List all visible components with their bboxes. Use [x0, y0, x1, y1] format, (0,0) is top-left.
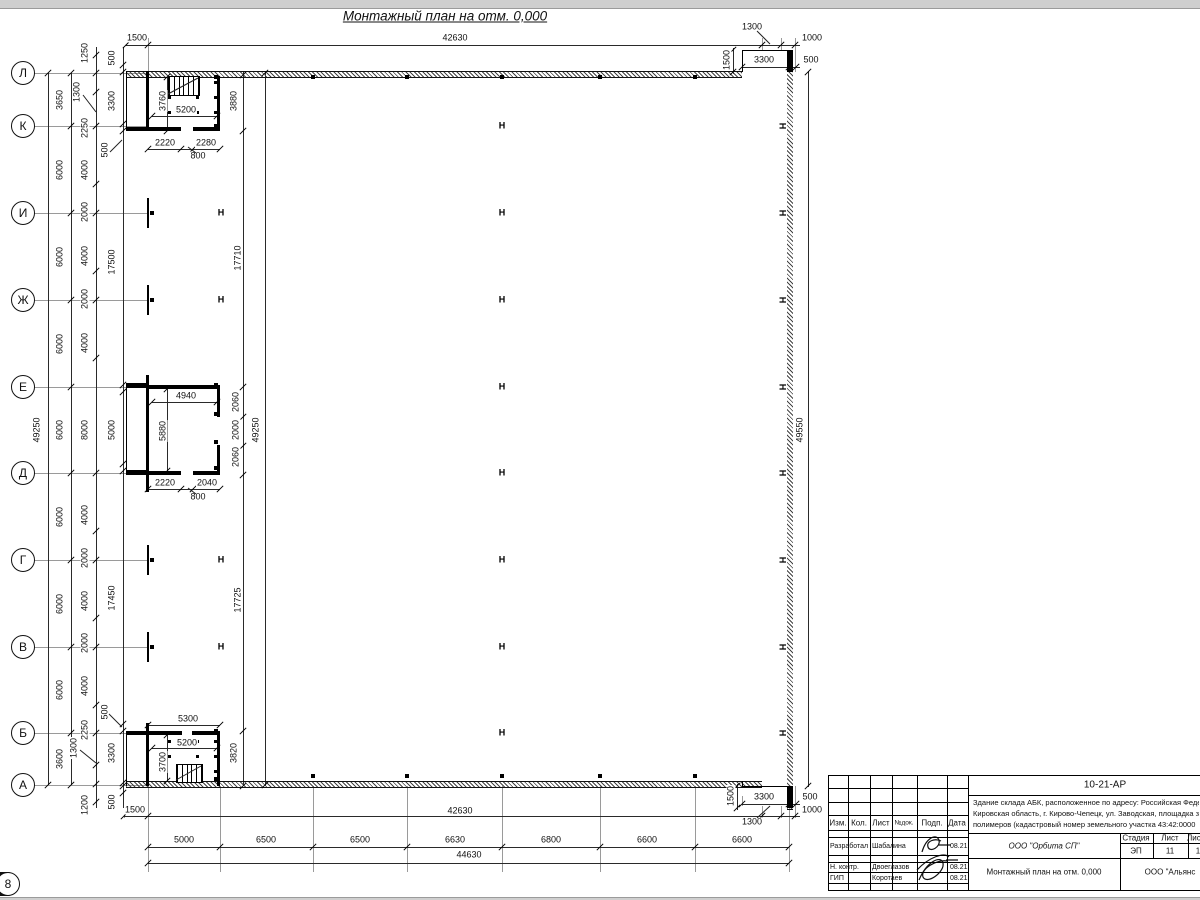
steel-column-symbol: Н [499, 383, 506, 392]
column-dot [214, 96, 217, 99]
wall-edge-line [742, 781, 743, 786]
sheet-value: 11 [1166, 847, 1174, 856]
steel-column-symbol: Н [499, 122, 506, 131]
dim-label: 42630 [446, 807, 473, 816]
dim-tick [216, 721, 223, 728]
address-line-2: Кировская область, г. Кирово-Чепецк, ул.… [973, 809, 1199, 818]
wall-hatched [126, 781, 762, 788]
dim-label: 1300 [73, 81, 82, 103]
steel-column-symbol: Н [218, 556, 225, 565]
dim-label: 17500 [108, 248, 117, 275]
steel-column-symbol: Н [778, 297, 787, 304]
column-square [405, 75, 409, 79]
steel-column-symbol: Н [499, 556, 506, 565]
dim-label: 2250 [81, 719, 90, 741]
dim-label: 6600 [636, 836, 658, 845]
dim-label: 500 [802, 56, 819, 65]
dim-label: 2220 [154, 139, 176, 148]
stage-value: ЭП [1130, 847, 1142, 856]
pilaster-square [150, 298, 154, 302]
dimension-line [152, 116, 217, 117]
sheets-value: 1 [1196, 847, 1200, 856]
dimension-line [48, 73, 49, 785]
doc-code: 10-21-АР [1084, 781, 1126, 790]
column-square [598, 774, 602, 778]
dim-label: 3650 [56, 89, 65, 111]
dim-label: 42630 [441, 34, 468, 43]
column-dot [168, 755, 171, 758]
steel-column-symbol: Н [778, 644, 787, 651]
stamp-col-izm: Изм. [829, 819, 846, 828]
dim-label: 6000 [56, 419, 65, 441]
dimension-line [124, 816, 800, 817]
date-developer: 08.21 [950, 842, 968, 851]
dim-tick [804, 782, 811, 789]
dim-label: 49250 [33, 416, 42, 443]
column-square [311, 75, 315, 79]
axis-bubble-left: Е [11, 375, 35, 399]
wall-solid [193, 471, 220, 475]
extension-line [34, 213, 148, 214]
dim-label: 6000 [56, 159, 65, 181]
dim-label: 800 [189, 493, 206, 502]
dim-label: 2280 [195, 139, 217, 148]
drawing-canvas: Монтажный план на отм. 0,000 ННННННННННН… [0, 0, 1200, 900]
dimension-line [71, 73, 72, 785]
axis-bubble-left: Д [11, 461, 35, 485]
dim-label: 4000 [81, 504, 90, 526]
column-dot [214, 755, 217, 758]
extension-line [34, 560, 148, 561]
axis-bubble-left: А [11, 773, 35, 797]
column-square [693, 75, 697, 79]
date-ncontrol: 08.21 [950, 863, 968, 872]
axis-bubble-left: Б [11, 721, 35, 745]
drawing-title: Монтажный план на отм. 0,000 [343, 9, 547, 24]
steel-column-symbol: Н [778, 123, 787, 130]
dim-label: 500 [108, 49, 117, 66]
dimension-line [126, 45, 800, 46]
steel-column-symbol: Н [778, 557, 787, 564]
axis-bubble-left: Ж [11, 288, 35, 312]
dim-label: 2040 [196, 479, 218, 488]
steel-column-symbol: Н [218, 643, 225, 652]
dim-label: 6800 [540, 836, 562, 845]
dim-label: 4000 [81, 245, 90, 267]
sheets-header: Листов [1187, 834, 1200, 843]
wall-solid [148, 385, 220, 389]
wall-edge-line [126, 735, 127, 786]
wall-hatched [787, 50, 793, 810]
dim-label: 4940 [175, 392, 197, 401]
steel-column-symbol: Н [499, 209, 506, 218]
dimension-line [265, 71, 266, 786]
pilaster-line [147, 285, 149, 315]
leader-line [83, 95, 96, 112]
stair-symbol [176, 764, 203, 783]
dim-label: 44630 [455, 851, 482, 860]
column-square [214, 440, 218, 444]
dim-label: 2000 [232, 419, 241, 441]
stamp-col-podp: Подп. [921, 819, 942, 828]
column-dot [168, 740, 171, 743]
column-square [214, 777, 218, 781]
dimension-line [148, 489, 220, 490]
name-gip: Коротаев [872, 874, 902, 883]
extension-line [34, 647, 148, 648]
dim-label: 6000 [56, 593, 65, 615]
column-square [500, 774, 504, 778]
axis-bubble-left: Г [11, 548, 35, 572]
dim-label: 2220 [154, 479, 176, 488]
dim-label: 4000 [81, 590, 90, 612]
role-ncontrol: Н. контр. [830, 863, 859, 872]
dim-label: 800 [189, 152, 206, 161]
dim-label: 8000 [81, 419, 90, 441]
wall-solid [126, 731, 147, 735]
column-dot [214, 111, 217, 114]
extension-line [600, 786, 601, 872]
dim-label: 6600 [731, 836, 753, 845]
dimension-line [808, 71, 809, 787]
dim-label: 6000 [56, 333, 65, 355]
column-dot [214, 740, 217, 743]
dim-label: 3600 [56, 748, 65, 770]
extension-line [407, 786, 408, 872]
dim-label: 6000 [56, 679, 65, 701]
pilaster-line [147, 632, 149, 662]
steel-column-symbol: Н [499, 643, 506, 652]
dim-label: 500 [101, 141, 110, 158]
wall-solid [217, 76, 220, 131]
pilaster-line [147, 198, 149, 228]
extension-line [695, 786, 696, 872]
dimension-line [152, 402, 217, 403]
wall-edge-line [126, 71, 127, 131]
dim-label: 5000 [173, 836, 195, 845]
dim-label: 1250 [81, 42, 90, 64]
column-square [693, 774, 697, 778]
steel-column-symbol: Н [778, 384, 787, 391]
dim-label: 1500 [723, 49, 732, 71]
stage-header: Стадия [1122, 834, 1149, 843]
pilaster-square [150, 558, 154, 562]
dimension-line [123, 47, 124, 808]
column-dot [196, 755, 199, 758]
axis-bubble-bottom: 8 [0, 872, 20, 896]
dim-label: 2000 [81, 288, 90, 310]
column-square [214, 383, 218, 387]
pilaster-line [147, 545, 149, 575]
dimension-line [243, 71, 244, 786]
dim-label: 500 [108, 793, 117, 810]
dim-label: 4000 [81, 332, 90, 354]
dim-label: 6000 [56, 246, 65, 268]
pilaster-square [150, 645, 154, 649]
axis-bubble-left: В [11, 635, 35, 659]
dim-label: 2250 [81, 117, 90, 139]
wall-solid [126, 470, 147, 475]
dim-label: 1200 [81, 794, 90, 816]
address-line-1: Здание склада АБК, расположенное по адре… [973, 798, 1199, 807]
wall-solid [126, 383, 147, 388]
role-developer: Разработал [830, 842, 868, 851]
dim-label: 3300 [108, 742, 117, 764]
dim-label: 17450 [108, 584, 117, 611]
date-gip: 08.21 [950, 874, 968, 883]
stamp-col-data: Дата [948, 819, 966, 828]
steel-column-symbol: Н [499, 296, 506, 305]
wall-edge-line [742, 50, 788, 51]
axis-bubble-left: И [11, 201, 35, 225]
sheet-header: Лист [1161, 834, 1178, 843]
steel-column-symbol: Н [499, 729, 506, 738]
dim-label: 5200 [176, 739, 198, 748]
column-square [214, 75, 218, 79]
dim-label: 1300 [741, 23, 763, 32]
dim-label: 3300 [108, 90, 117, 112]
leader-line [110, 140, 122, 152]
dim-label: 3880 [230, 90, 239, 112]
steel-column-symbol: Н [778, 730, 787, 737]
firm-name: ООО "Альянс [1145, 868, 1196, 877]
dim-label: 2000 [81, 201, 90, 223]
dim-label: 1500 [126, 34, 148, 43]
column-square [311, 774, 315, 778]
stair-symbol [168, 76, 200, 96]
dim-label: 4000 [81, 675, 90, 697]
dim-label: 6630 [444, 836, 466, 845]
dim-label: 17710 [234, 244, 243, 271]
dim-label: 1300 [741, 818, 763, 827]
steel-column-symbol: Н [499, 469, 506, 478]
dim-label: 2000 [81, 547, 90, 569]
wall-solid [146, 71, 149, 131]
leader-line [80, 750, 96, 763]
extension-line [313, 786, 314, 872]
column-square [214, 412, 218, 416]
column-square [214, 466, 218, 470]
dim-label: 5000 [108, 419, 117, 441]
column-square [500, 75, 504, 79]
org-name: ООО "Орбита СП" [1008, 842, 1079, 851]
dim-label: 49250 [252, 416, 261, 443]
column-square [598, 75, 602, 79]
dim-label: 1000 [801, 34, 823, 43]
dim-label: 5880 [159, 420, 168, 442]
dim-label: 17725 [234, 586, 243, 613]
role-gip: ГИП [830, 874, 844, 883]
wall-edge-line [742, 786, 788, 787]
dim-label: 2000 [81, 632, 90, 654]
dim-label: 3300 [753, 56, 775, 65]
dimension-line [148, 149, 220, 150]
dim-label: 1500 [727, 785, 736, 807]
steel-column-symbol: Н [218, 209, 225, 218]
wall-solid [126, 127, 148, 131]
dimension-line [148, 863, 789, 864]
column-dot [168, 96, 171, 99]
dim-label: 500 [801, 793, 818, 802]
column-square [214, 729, 218, 733]
stamp-col-list: Лист [872, 819, 889, 828]
extension-line [34, 300, 148, 301]
column-dot [214, 81, 217, 84]
dim-label: 2060 [232, 446, 241, 468]
axis-bubble-left: Л [11, 61, 35, 85]
stamp-col-ndok: №док. [894, 819, 913, 828]
dim-label: 5200 [175, 106, 197, 115]
dim-label: 1500 [124, 806, 146, 815]
pilaster-square [150, 211, 154, 215]
dim-label: 4000 [81, 159, 90, 181]
column-dot [214, 770, 217, 773]
wall-solid [148, 127, 181, 131]
name-ncontrol: Двоеглазов [872, 863, 909, 872]
dim-label: 1300 [70, 737, 79, 759]
steel-column-symbol: Н [218, 296, 225, 305]
extension-line [502, 786, 503, 872]
dimension-line [148, 725, 220, 726]
dim-label: 3820 [230, 742, 239, 764]
column-square [405, 774, 409, 778]
extension-line [148, 786, 149, 872]
dim-tick [216, 145, 223, 152]
column-square [214, 124, 218, 128]
column-dot [196, 96, 199, 99]
dim-label: 3760 [159, 90, 168, 112]
sheet-name: Монтажный план на отм. 0,000 [987, 868, 1102, 877]
stamp-col-kol: Кол. [851, 819, 867, 828]
window-edge-top [0, 0, 1200, 9]
dim-label: 49550 [796, 416, 805, 443]
wall-edge-line [742, 50, 743, 72]
axis-bubble-left: К [11, 114, 35, 138]
address-line-3: полимеров (кадастровый номер земельного … [973, 820, 1199, 829]
dim-label: 6000 [56, 506, 65, 528]
column-dot [168, 111, 171, 114]
dimension-line [152, 748, 217, 749]
dimension-line [96, 47, 97, 808]
dim-label: 6500 [255, 836, 277, 845]
steel-column-symbol: Н [778, 210, 787, 217]
dim-label: 1000 [801, 806, 823, 815]
dim-label: 5300 [177, 715, 199, 724]
name-developer: Шабалина [872, 842, 906, 851]
dim-label: 500 [101, 703, 110, 720]
dim-label: 2060 [232, 391, 241, 413]
dim-label: 3300 [753, 793, 775, 802]
steel-column-symbol: Н [778, 470, 787, 477]
extension-line [220, 786, 221, 872]
dim-label: 6500 [349, 836, 371, 845]
dim-label: 3700 [159, 751, 168, 773]
